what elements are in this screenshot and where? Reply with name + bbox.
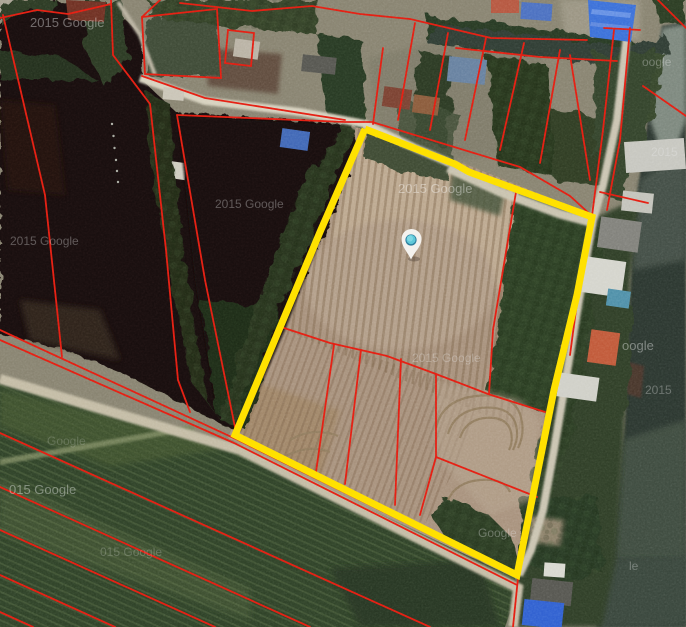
svg-text:015 Google: 015 Google: [100, 545, 162, 559]
svg-text:2015 Google: 2015 Google: [412, 351, 481, 365]
svg-text:Google: Google: [47, 434, 86, 448]
svg-text:2015 Google: 2015 Google: [10, 234, 79, 248]
svg-text:2015 Google: 2015 Google: [30, 15, 104, 30]
svg-text:oogle: oogle: [642, 55, 672, 69]
svg-text:Google: Google: [478, 526, 517, 540]
svg-text:2015 Google: 2015 Google: [398, 181, 472, 196]
svg-text:2015: 2015: [651, 145, 678, 159]
svg-text:oogle: oogle: [622, 338, 654, 353]
svg-text:le: le: [629, 559, 639, 573]
svg-text:2015 Google: 2015 Google: [215, 197, 284, 211]
svg-text:2015: 2015: [645, 383, 672, 397]
svg-text:015 Google: 015 Google: [9, 482, 76, 497]
